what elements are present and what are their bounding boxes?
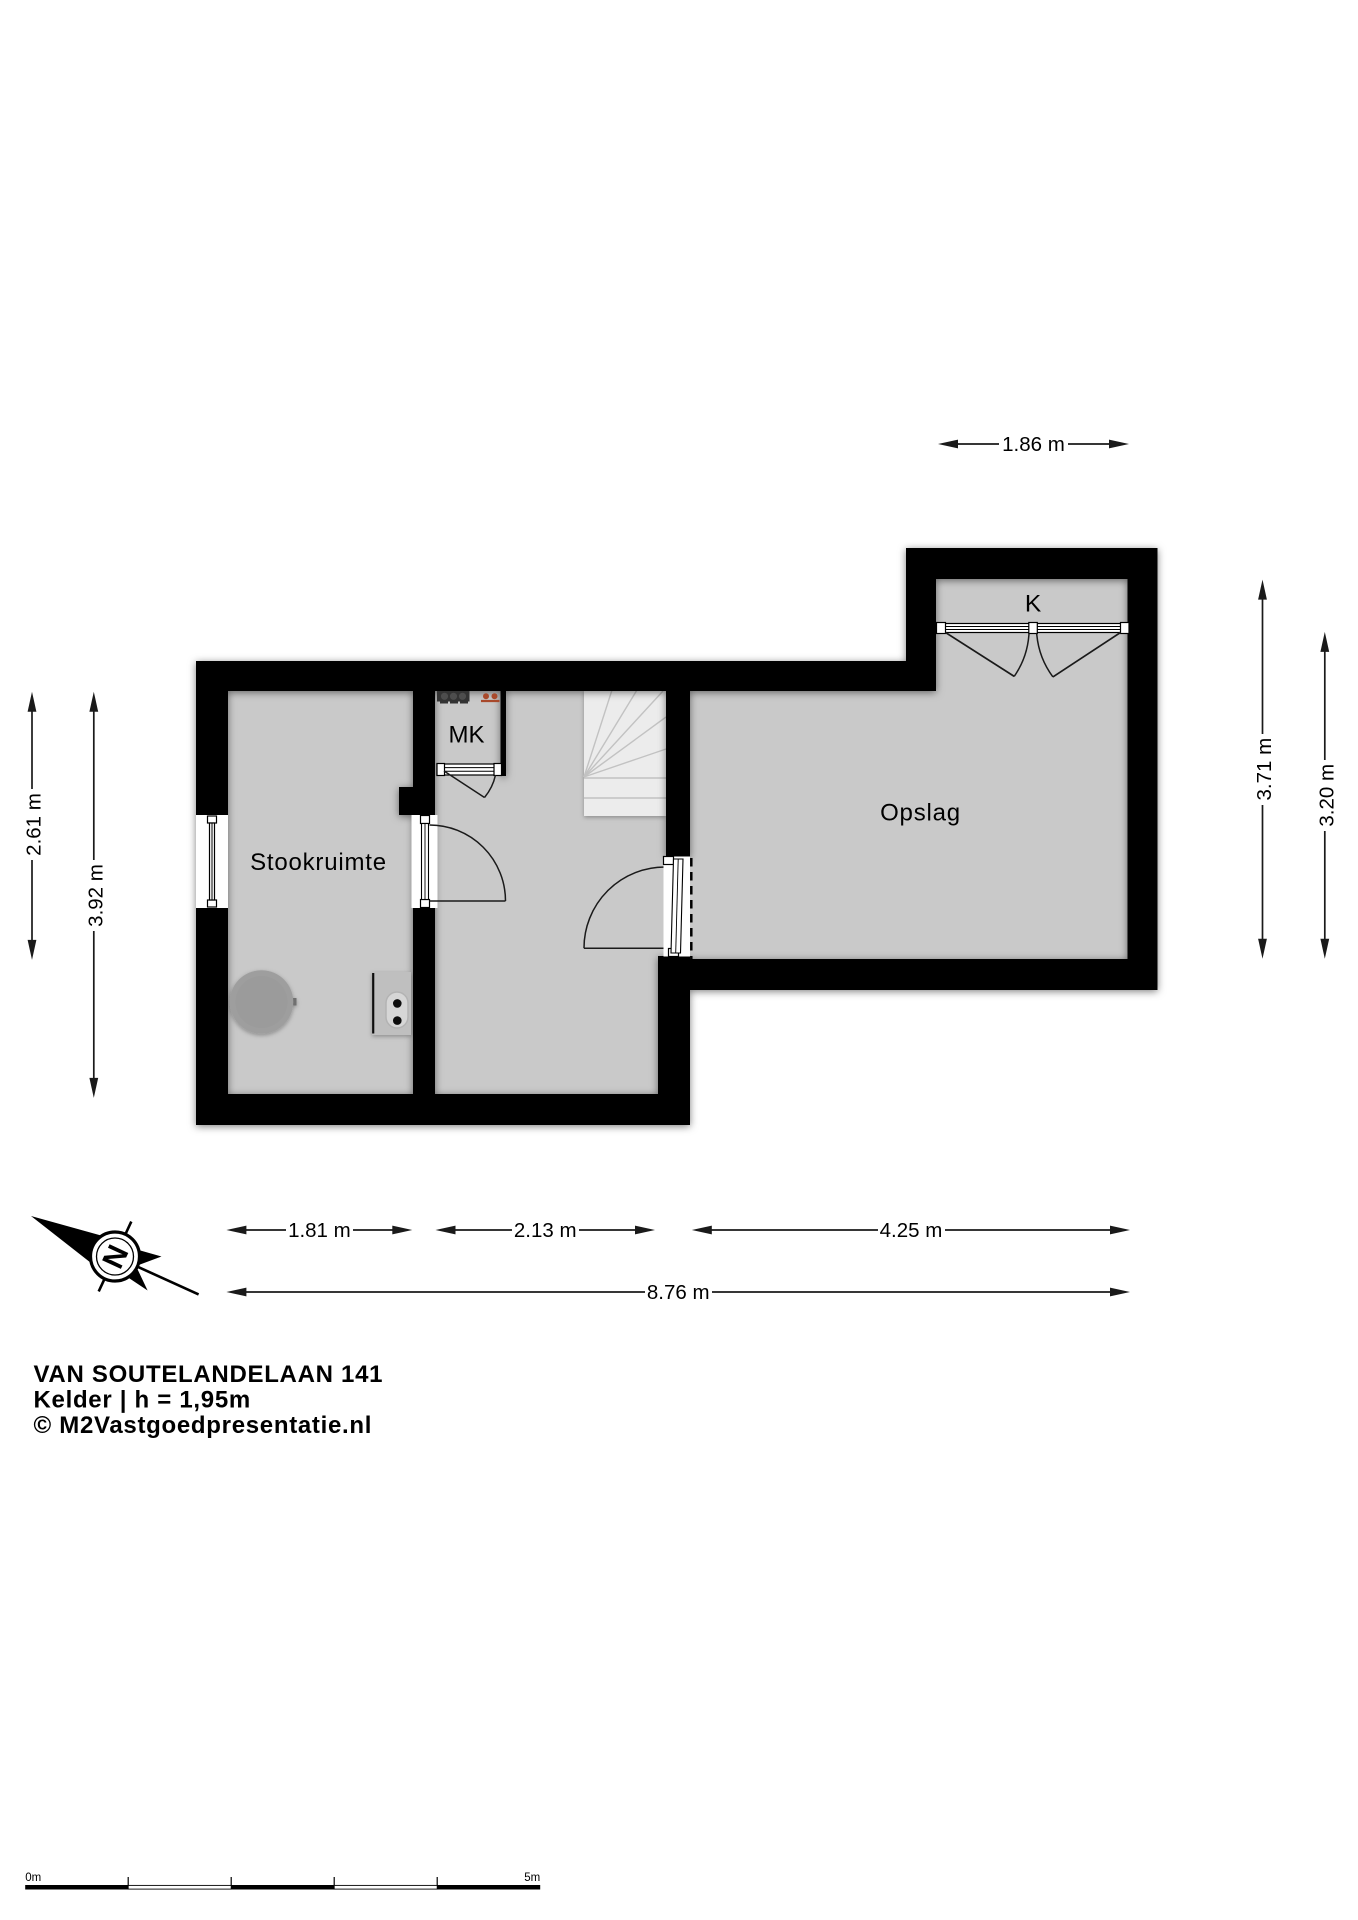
svg-text:2.13 m: 2.13 m — [514, 1219, 577, 1242]
svg-text:1.86 m: 1.86 m — [1002, 433, 1065, 456]
svg-text:K: K — [1025, 591, 1042, 618]
svg-text:2.61 m: 2.61 m — [23, 793, 46, 856]
svg-text:3.71 m: 3.71 m — [1253, 738, 1276, 801]
svg-text:0m: 0m — [25, 1872, 41, 1884]
svg-text:© M2Vastgoedpresentatie.nl: © M2Vastgoedpresentatie.nl — [34, 1412, 373, 1439]
svg-text:3.92 m: 3.92 m — [84, 864, 107, 927]
svg-text:VAN SOUTELANDELAAN 141: VAN SOUTELANDELAAN 141 — [34, 1361, 384, 1388]
svg-text:MK: MK — [449, 722, 485, 749]
svg-text:5m: 5m — [524, 1872, 540, 1884]
svg-text:8.76 m: 8.76 m — [647, 1281, 710, 1304]
svg-text:1.81 m: 1.81 m — [288, 1219, 351, 1242]
svg-text:Stookruimte: Stookruimte — [250, 849, 387, 876]
svg-text:3.20 m: 3.20 m — [1315, 764, 1338, 827]
svg-text:4.25 m: 4.25 m — [880, 1219, 943, 1242]
svg-text:Opslag: Opslag — [880, 800, 961, 827]
svg-text:Kelder | h = 1,95m: Kelder | h = 1,95m — [34, 1387, 251, 1414]
